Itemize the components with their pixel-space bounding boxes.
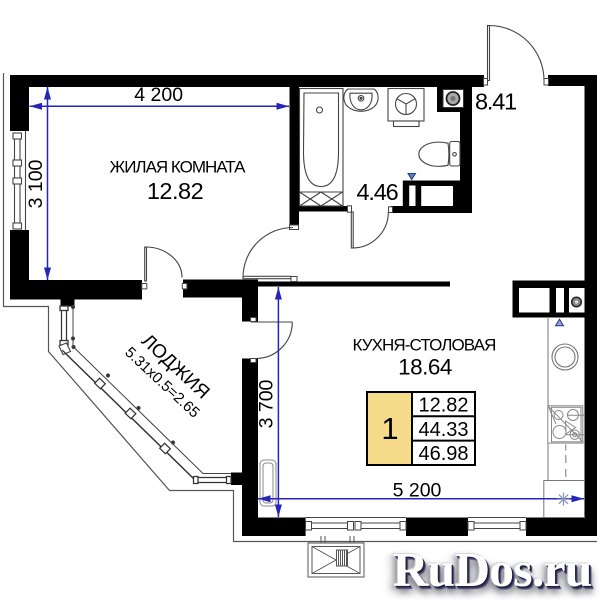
svg-text:4.46: 4.46: [357, 179, 399, 205]
svg-text:18.64: 18.64: [398, 355, 452, 380]
svg-text:12.82: 12.82: [147, 178, 203, 204]
svg-text:4 200: 4 200: [134, 84, 183, 106]
svg-text:3 100: 3 100: [25, 159, 47, 208]
svg-text:5 200: 5 200: [393, 480, 442, 502]
svg-text:1: 1: [381, 411, 398, 446]
svg-text:8.41: 8.41: [475, 89, 516, 115]
svg-text:КУХНЯ-СТОЛОВАЯ: КУХНЯ-СТОЛОВАЯ: [353, 336, 496, 355]
svg-text:3 700: 3 700: [256, 379, 278, 428]
svg-text:ЖИЛАЯ КОМНАТА: ЖИЛАЯ КОМНАТА: [110, 158, 247, 177]
svg-text:46.98: 46.98: [418, 443, 468, 465]
svg-text:12.82: 12.82: [418, 395, 468, 417]
svg-text:44.33: 44.33: [418, 419, 468, 441]
